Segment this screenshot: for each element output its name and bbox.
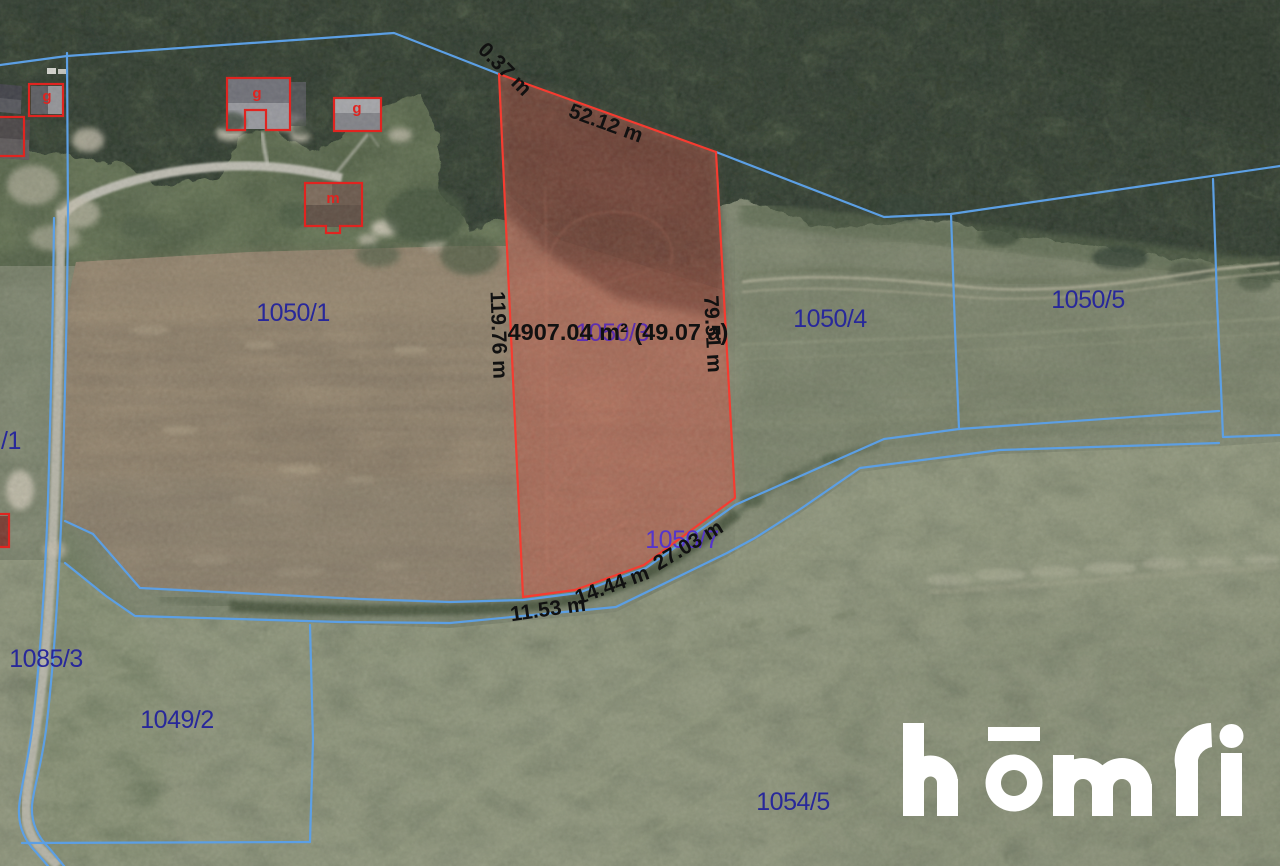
svg-text:g: g bbox=[42, 88, 51, 105]
svg-text:g: g bbox=[352, 100, 361, 117]
svg-text:/1: /1 bbox=[1, 427, 21, 455]
svg-text:4907.04 m² (49.07 a): 4907.04 m² (49.07 a) bbox=[508, 319, 729, 345]
svg-text:m: m bbox=[326, 190, 339, 207]
svg-text:1085/3: 1085/3 bbox=[9, 645, 82, 673]
svg-text:1050/1: 1050/1 bbox=[256, 299, 329, 327]
svg-text:1050/4: 1050/4 bbox=[793, 305, 867, 333]
svg-text:1050/5: 1050/5 bbox=[1051, 286, 1124, 314]
svg-text:1054/5: 1054/5 bbox=[756, 788, 829, 816]
svg-text:1049/2: 1049/2 bbox=[140, 706, 213, 734]
svg-text:g: g bbox=[252, 85, 261, 102]
